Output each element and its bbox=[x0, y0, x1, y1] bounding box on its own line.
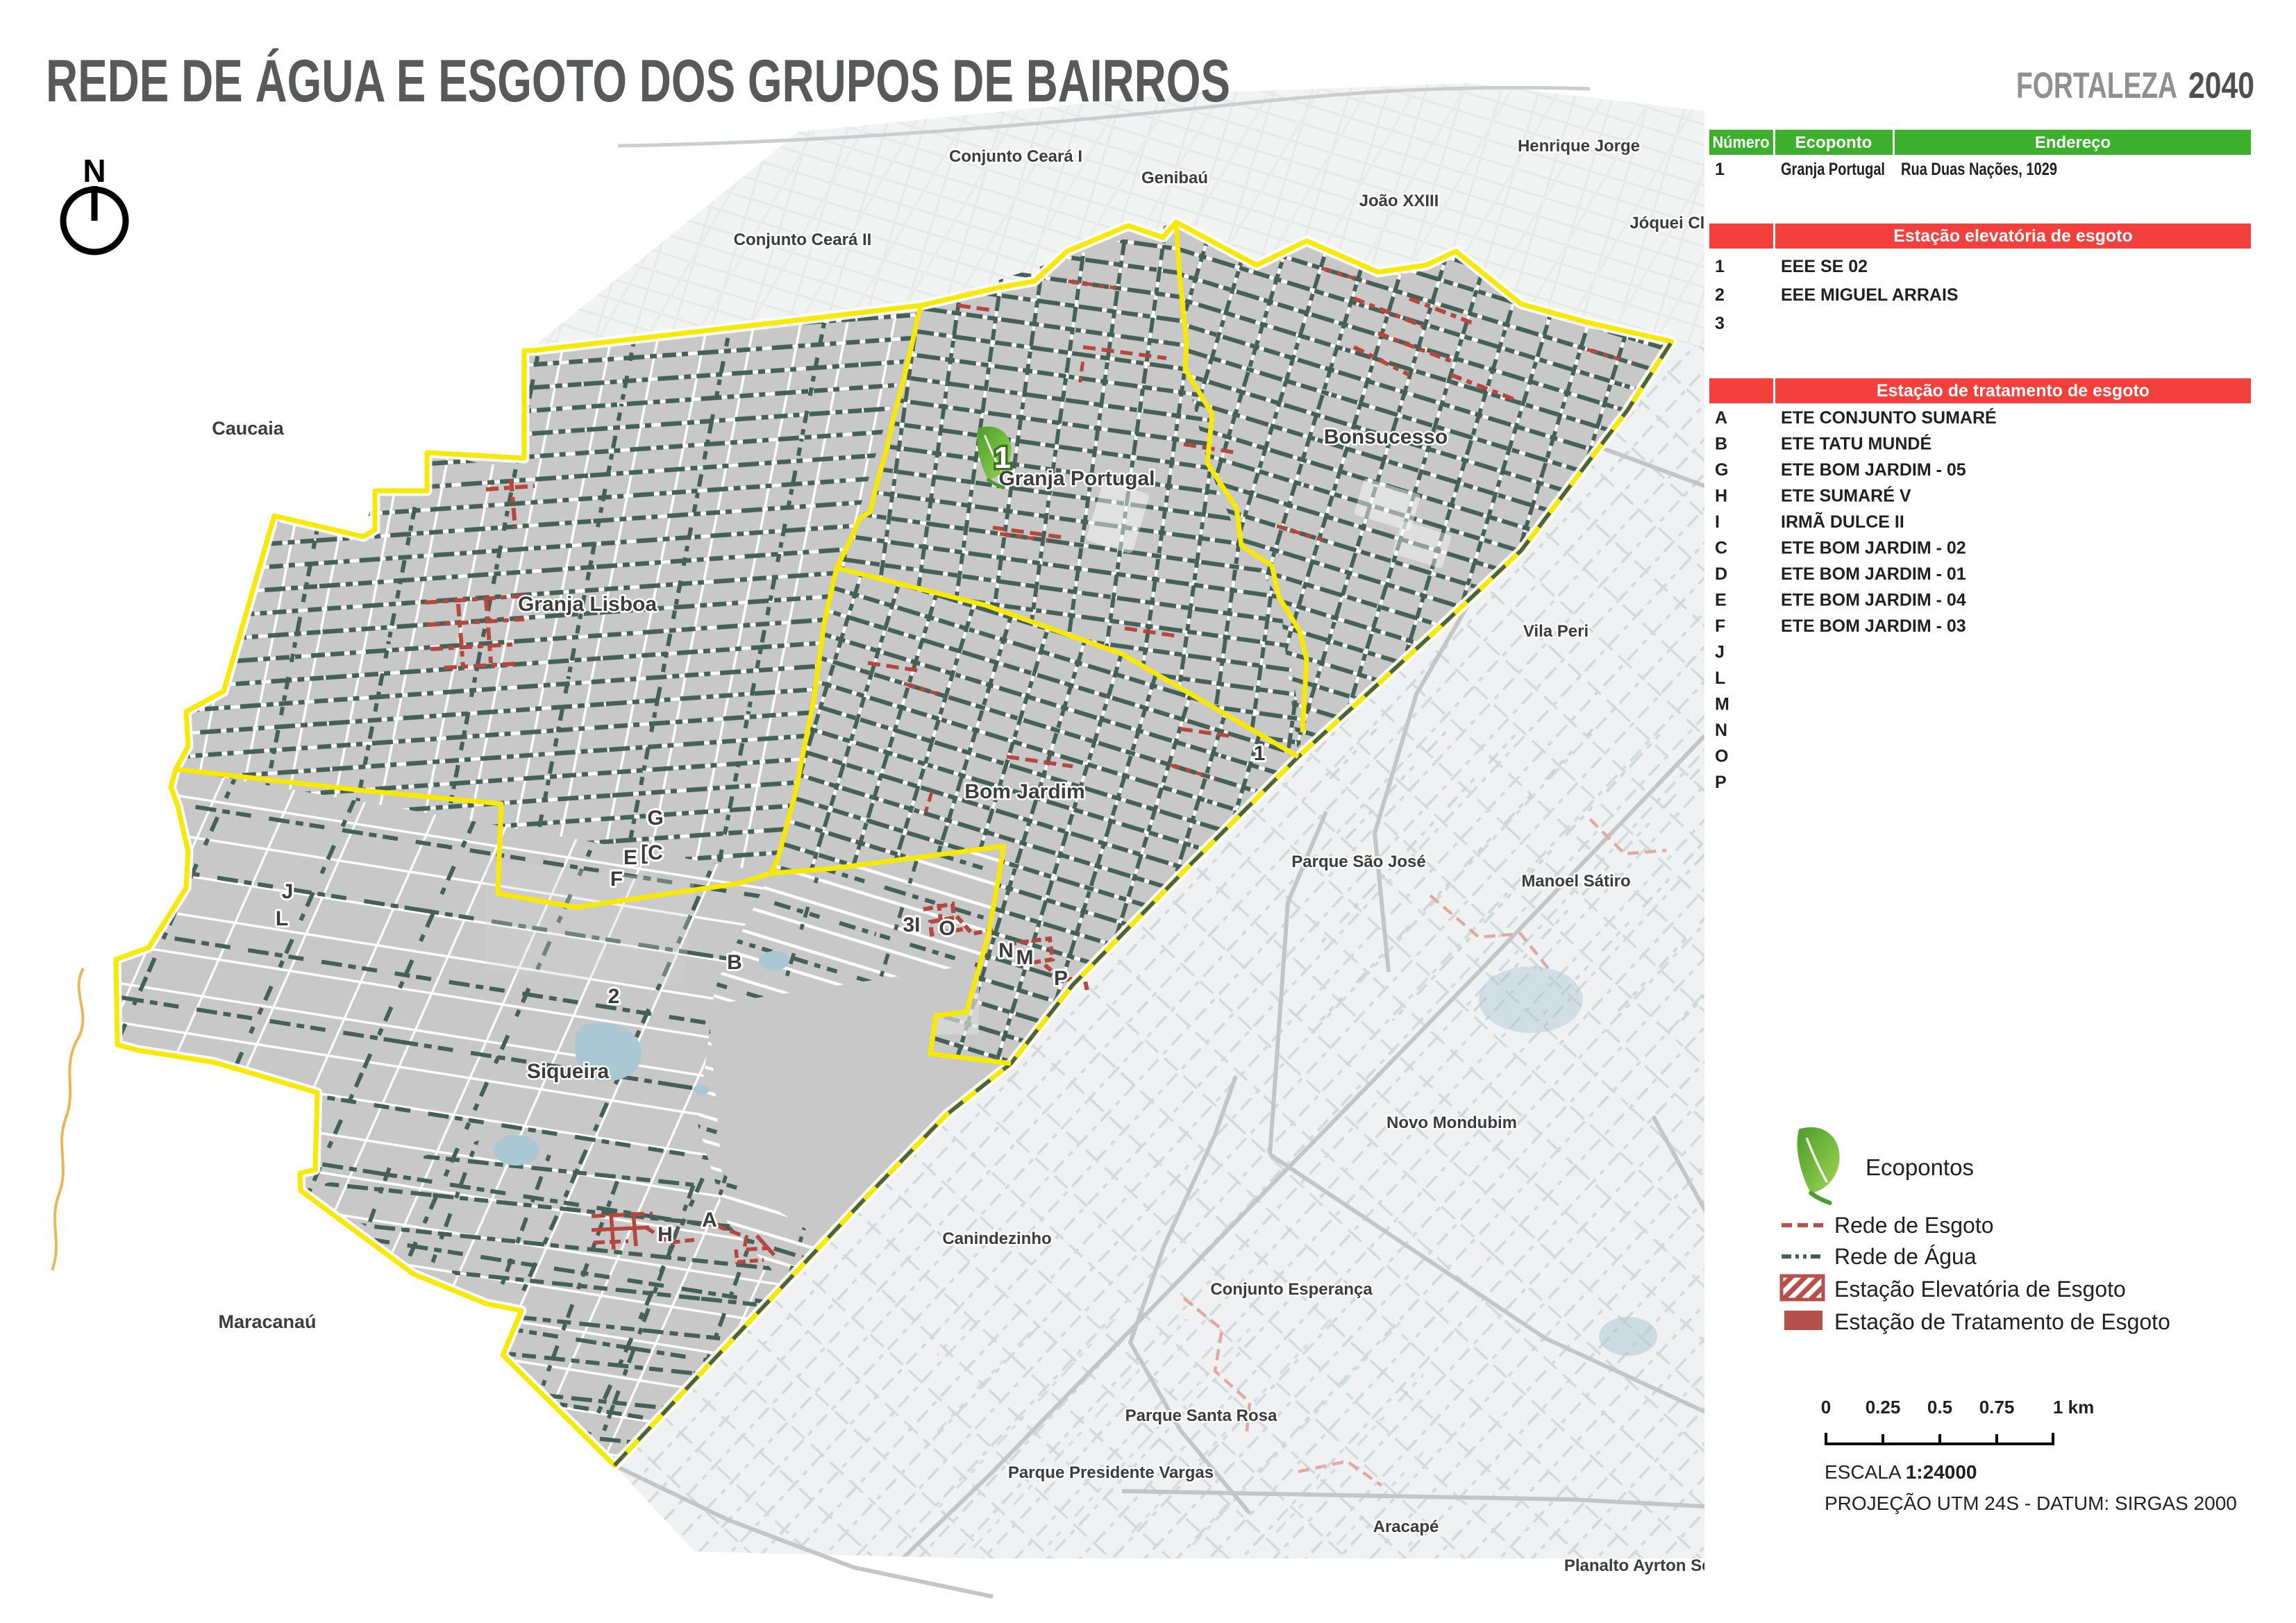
svg-text:IRMÃ DULCE II: IRMÃ DULCE II bbox=[1781, 511, 1904, 532]
svg-text:Bonsucesso: Bonsucesso bbox=[1324, 426, 1448, 448]
svg-text:PROJEÇÃO UTM 24S - DATUM: SIRG: PROJEÇÃO UTM 24S - DATUM: SIRGAS 2000 bbox=[1825, 1492, 2237, 1514]
svg-text:Maracanaú: Maracanaú bbox=[218, 1311, 316, 1332]
svg-text:B: B bbox=[727, 951, 742, 974]
svg-text:EEE SE 02: EEE SE 02 bbox=[1781, 257, 1868, 276]
svg-text:2: 2 bbox=[608, 985, 620, 1008]
svg-text:3I: 3I bbox=[903, 914, 920, 936]
svg-text:1: 1 bbox=[1715, 160, 1725, 179]
svg-text:N: N bbox=[1715, 721, 1727, 740]
svg-text:Estação Elevatória de Esgoto: Estação Elevatória de Esgoto bbox=[1834, 1277, 2126, 1302]
svg-text:C: C bbox=[1715, 539, 1727, 558]
svg-text:Estação elevatória de esgoto: Estação elevatória de esgoto bbox=[1893, 226, 2133, 246]
svg-text:E: E bbox=[1715, 591, 1727, 610]
svg-text:Ecoponto: Ecoponto bbox=[1795, 133, 1872, 152]
svg-text:H: H bbox=[657, 1223, 673, 1246]
svg-text:1: 1 bbox=[1254, 742, 1266, 765]
svg-text:Novo Mondubim: Novo Mondubim bbox=[1386, 1113, 1517, 1132]
svg-text:REDE DE ÁGUA E ESGOTO DOS GRUP: REDE DE ÁGUA E ESGOTO DOS GRUPOS DE BAIR… bbox=[46, 48, 1230, 115]
svg-text:P: P bbox=[1715, 773, 1727, 792]
svg-text:Genibaú: Genibaú bbox=[1141, 169, 1208, 187]
svg-text:Manoel Sátiro: Manoel Sátiro bbox=[1521, 872, 1630, 891]
svg-text:1: 1 bbox=[994, 441, 1011, 475]
svg-text:M: M bbox=[1016, 946, 1034, 969]
svg-text:ETE CONJUNTO SUMARÉ: ETE CONJUNTO SUMARÉ bbox=[1781, 407, 1997, 428]
svg-text:Granja Portugal: Granja Portugal bbox=[1781, 160, 1885, 179]
svg-text:EEE MIGUEL ARRAIS: EEE MIGUEL ARRAIS bbox=[1781, 285, 1959, 305]
svg-text:[C: [C bbox=[641, 841, 663, 864]
svg-text:ETE BOM JARDIM - 03: ETE BOM JARDIM - 03 bbox=[1781, 616, 1966, 636]
svg-text:ETE TATU MUNDÉ: ETE TATU MUNDÉ bbox=[1781, 434, 1932, 454]
svg-text:Granja Lisboa: Granja Lisboa bbox=[518, 593, 657, 616]
svg-text:0: 0 bbox=[1821, 1397, 1831, 1418]
svg-text:Ecopontos: Ecopontos bbox=[1866, 1154, 1974, 1180]
svg-text:A: A bbox=[702, 1209, 717, 1231]
svg-text:Estação de tratamento de esgot: Estação de tratamento de esgoto bbox=[1877, 381, 2150, 401]
svg-text:J: J bbox=[1715, 643, 1725, 662]
svg-text:1: 1 bbox=[1715, 257, 1725, 276]
svg-text:P: P bbox=[1054, 967, 1068, 990]
svg-text:O: O bbox=[939, 917, 955, 940]
svg-text:ETE SUMARÉ V: ETE SUMARÉ V bbox=[1781, 486, 1911, 506]
svg-text:Estação de Tratamento de Esgot: Estação de Tratamento de Esgoto bbox=[1834, 1309, 2170, 1334]
svg-text:0.75: 0.75 bbox=[1979, 1397, 2015, 1418]
svg-text:João XXIII: João XXIII bbox=[1359, 192, 1439, 210]
svg-text:Vila Peri: Vila Peri bbox=[1523, 622, 1589, 641]
svg-text:I: I bbox=[1715, 512, 1720, 532]
svg-text:1 km: 1 km bbox=[2053, 1397, 2094, 1418]
svg-text:N: N bbox=[83, 153, 106, 189]
svg-text:FORTALEZA: FORTALEZA bbox=[2016, 65, 2177, 106]
svg-text:Caucaia: Caucaia bbox=[212, 418, 285, 439]
svg-text:O: O bbox=[1715, 747, 1728, 766]
svg-text:M: M bbox=[1715, 695, 1729, 714]
svg-text:N: N bbox=[998, 939, 1014, 962]
svg-text:J: J bbox=[282, 880, 294, 903]
svg-text:Bom Jardim: Bom Jardim bbox=[964, 780, 1084, 803]
svg-text:D: D bbox=[1715, 564, 1727, 584]
svg-text:Conjunto Ceará I: Conjunto Ceará I bbox=[949, 147, 1082, 166]
svg-text:Conjunto Esperança: Conjunto Esperança bbox=[1210, 1280, 1373, 1299]
svg-text:Rede de Esgoto: Rede de Esgoto bbox=[1834, 1213, 1994, 1238]
svg-text:Rede de Água: Rede de Água bbox=[1834, 1244, 1977, 1269]
svg-text:Parque Presidente Vargas: Parque Presidente Vargas bbox=[1008, 1463, 1214, 1482]
svg-text:Granja Portugal: Granja Portugal bbox=[998, 467, 1155, 490]
svg-text:2: 2 bbox=[1715, 285, 1725, 305]
svg-text:ETE BOM JARDIM - 05: ETE BOM JARDIM - 05 bbox=[1781, 460, 1966, 480]
svg-text:L: L bbox=[276, 907, 288, 930]
svg-text:Número: Número bbox=[1713, 133, 1770, 152]
svg-text:Parque Santa Rosa: Parque Santa Rosa bbox=[1125, 1406, 1277, 1425]
svg-text:0.25: 0.25 bbox=[1866, 1397, 1901, 1418]
svg-text:B: B bbox=[1715, 435, 1727, 454]
svg-text:Conjunto Ceará II: Conjunto Ceará II bbox=[734, 230, 872, 249]
svg-text:ETE BOM JARDIM - 04: ETE BOM JARDIM - 04 bbox=[1781, 591, 1966, 610]
svg-text:ESCALA 1:24000: ESCALA 1:24000 bbox=[1825, 1461, 1977, 1483]
svg-text:G: G bbox=[647, 807, 663, 830]
svg-text:Siqueira: Siqueira bbox=[527, 1060, 610, 1083]
svg-text:H: H bbox=[1715, 487, 1727, 506]
svg-text:G: G bbox=[1715, 460, 1728, 480]
svg-text:Aracapé: Aracapé bbox=[1373, 1517, 1439, 1536]
svg-text:A: A bbox=[1715, 408, 1727, 428]
svg-text:ETE BOM JARDIM - 01: ETE BOM JARDIM - 01 bbox=[1781, 564, 1966, 584]
svg-text:Henrique Jorge: Henrique Jorge bbox=[1518, 137, 1640, 155]
svg-text:2040: 2040 bbox=[2188, 65, 2254, 106]
svg-text:3: 3 bbox=[1715, 314, 1725, 333]
svg-text:F: F bbox=[1715, 616, 1725, 636]
svg-text:Canindezinho: Canindezinho bbox=[942, 1229, 1051, 1248]
svg-text:0.5: 0.5 bbox=[1927, 1397, 1952, 1418]
svg-text:E: E bbox=[623, 846, 637, 869]
svg-text:ETE BOM JARDIM - 02: ETE BOM JARDIM - 02 bbox=[1781, 539, 1966, 558]
svg-text:F: F bbox=[610, 868, 623, 891]
svg-text:Rua Duas Nações, 1029: Rua Duas Nações, 1029 bbox=[1901, 160, 2057, 179]
svg-text:Parque São José: Parque São José bbox=[1291, 852, 1425, 871]
svg-text:Endereço: Endereço bbox=[2035, 133, 2111, 152]
svg-text:L: L bbox=[1715, 668, 1725, 688]
